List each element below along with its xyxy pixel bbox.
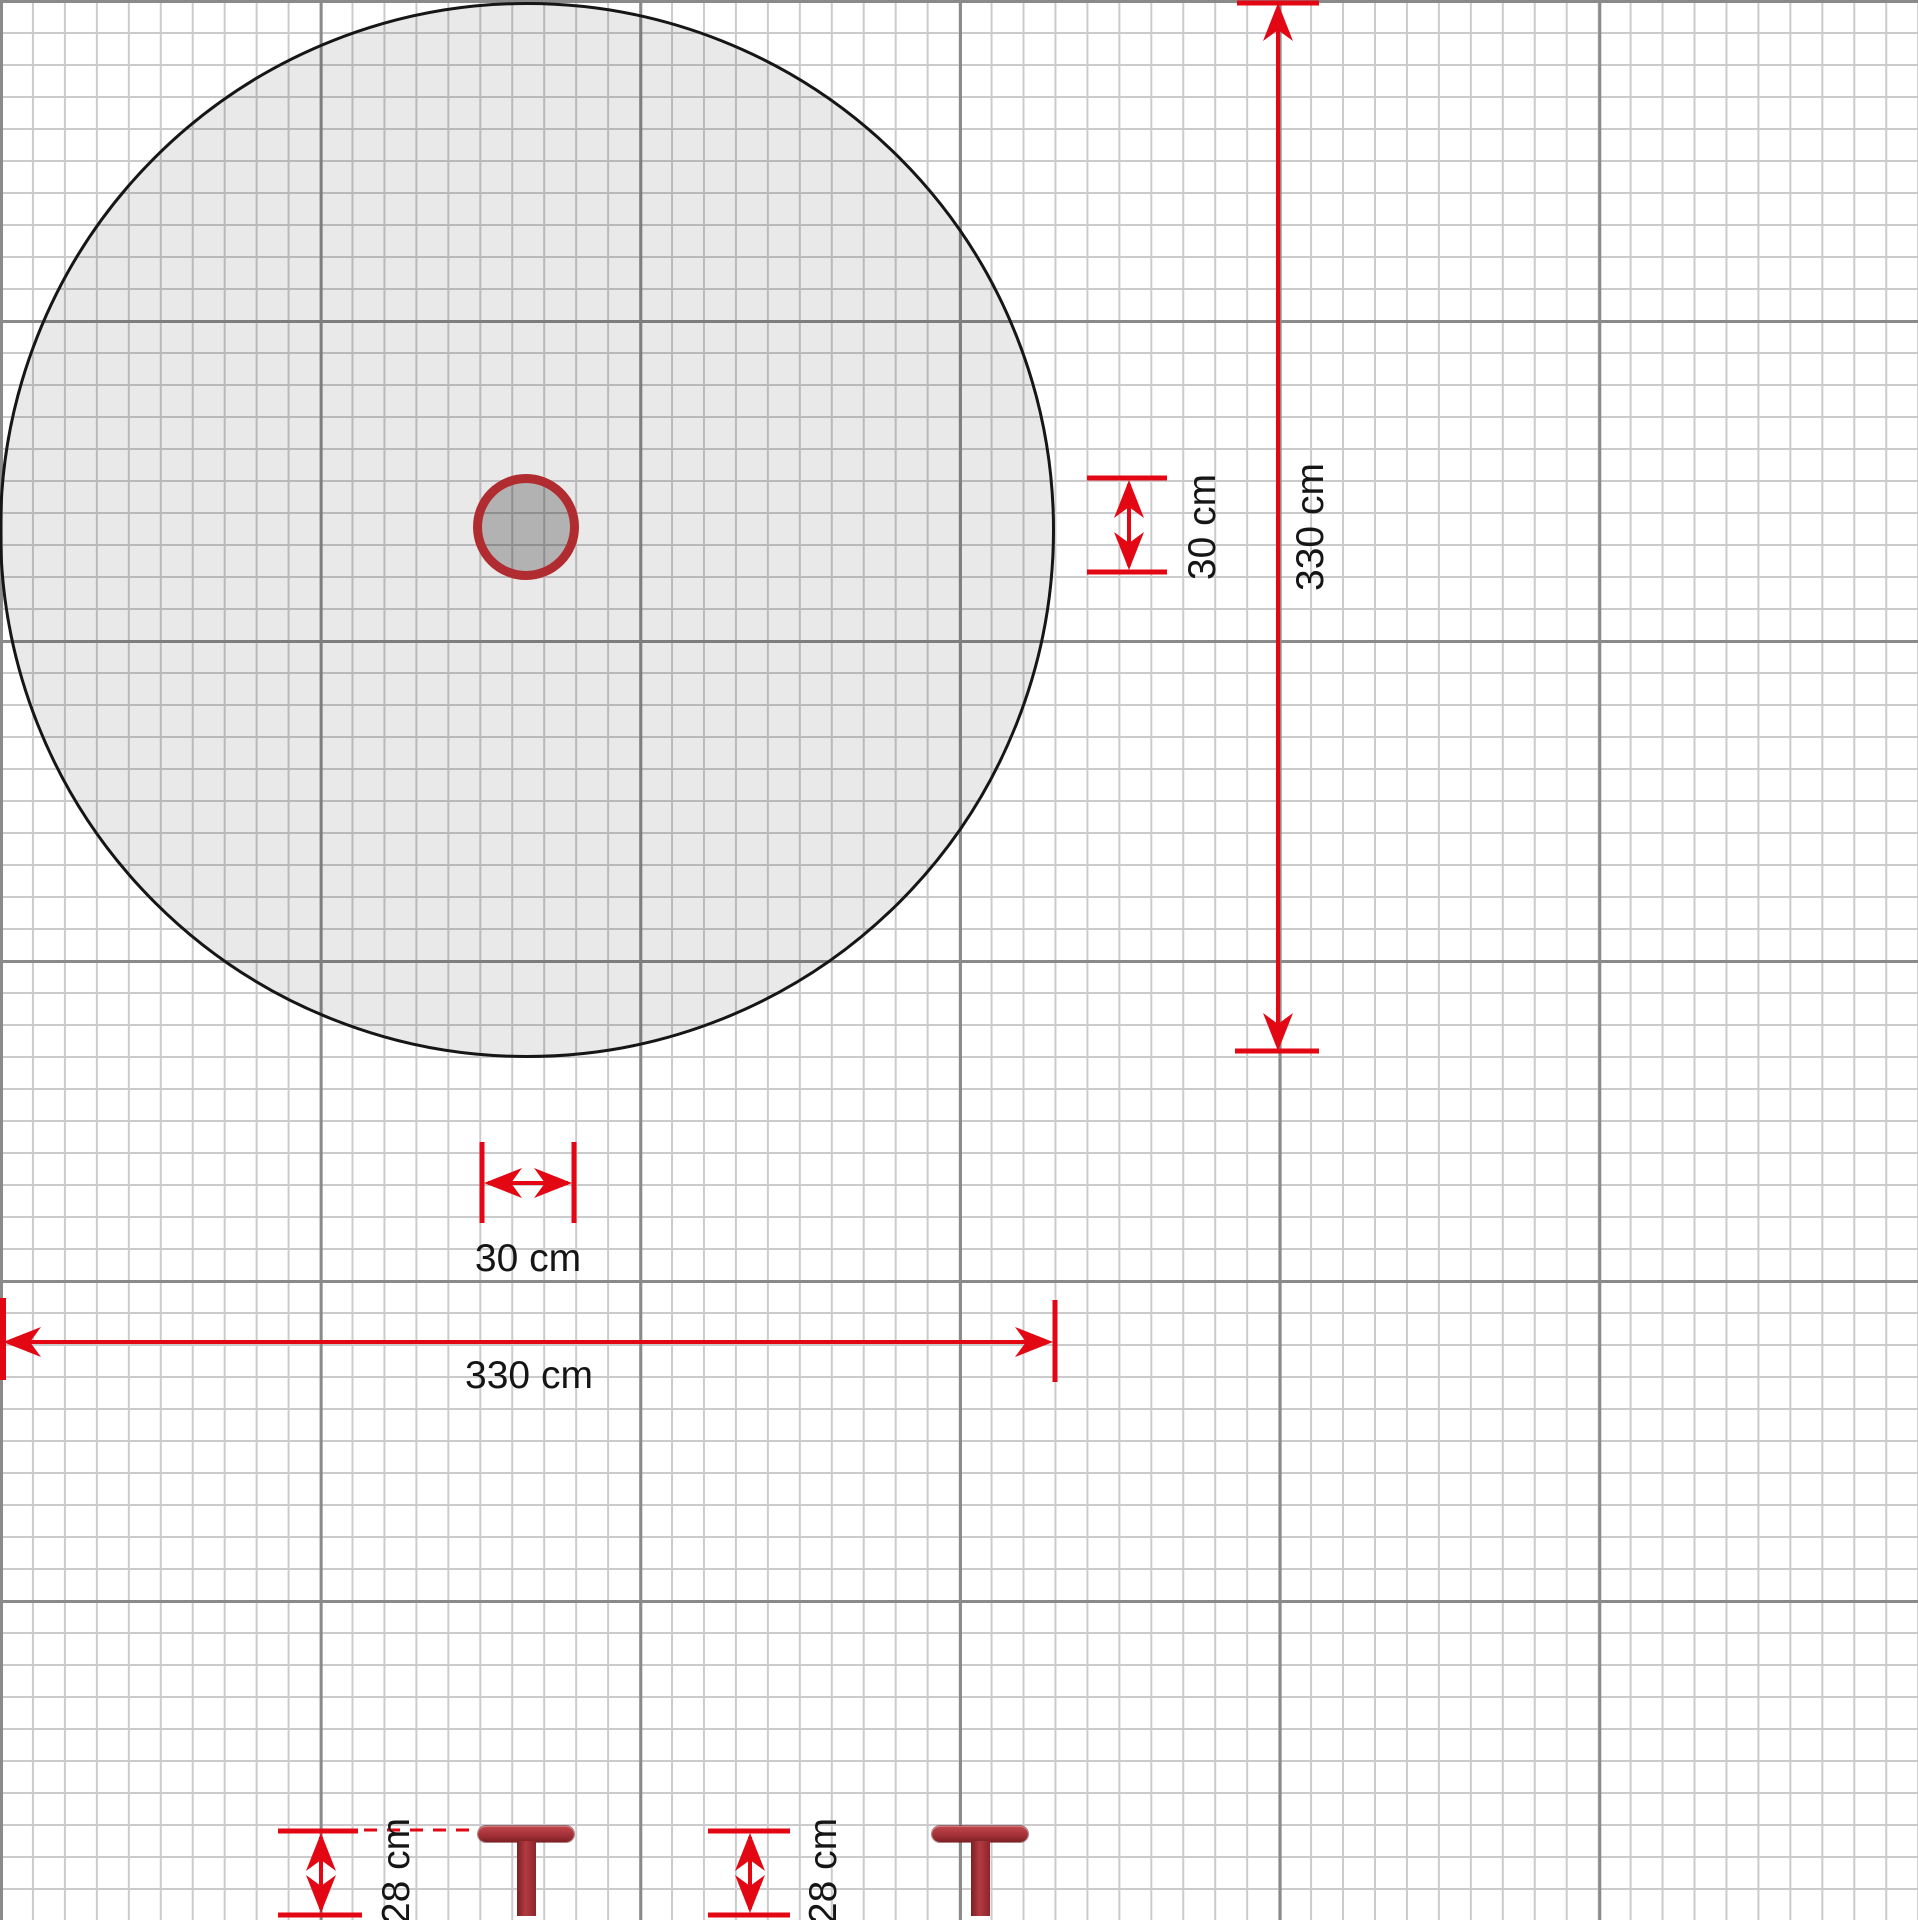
ground-anchor-left-stem: [517, 1841, 536, 1916]
horizontal-30-label: 30 cm: [438, 1234, 618, 1282]
ground-anchor-left-bar: [478, 1826, 574, 1842]
vertical-330-label: 330 cm: [1286, 437, 1334, 617]
horizontal-330-label: 330 cm: [439, 1351, 619, 1399]
depth-28-right-label: 28 cm: [799, 1781, 847, 1920]
ground-anchor-right-stem: [971, 1841, 990, 1916]
vertical-30-label: 30 cm: [1178, 437, 1226, 617]
horizontal-30-dimension: [482, 1142, 574, 1223]
center-post-circle: [473, 474, 579, 580]
graph-paper-canvas: 30 cm 330 cm 30 cm 330 cm 28 cm 28 cm: [0, 0, 1918, 1920]
ground-anchor-right-bar: [932, 1826, 1028, 1842]
depth-28-right-dimension: [708, 1831, 790, 1915]
depth-28-left-label: 28 cm: [372, 1781, 420, 1920]
vertical-30-dimension: [1087, 478, 1167, 572]
